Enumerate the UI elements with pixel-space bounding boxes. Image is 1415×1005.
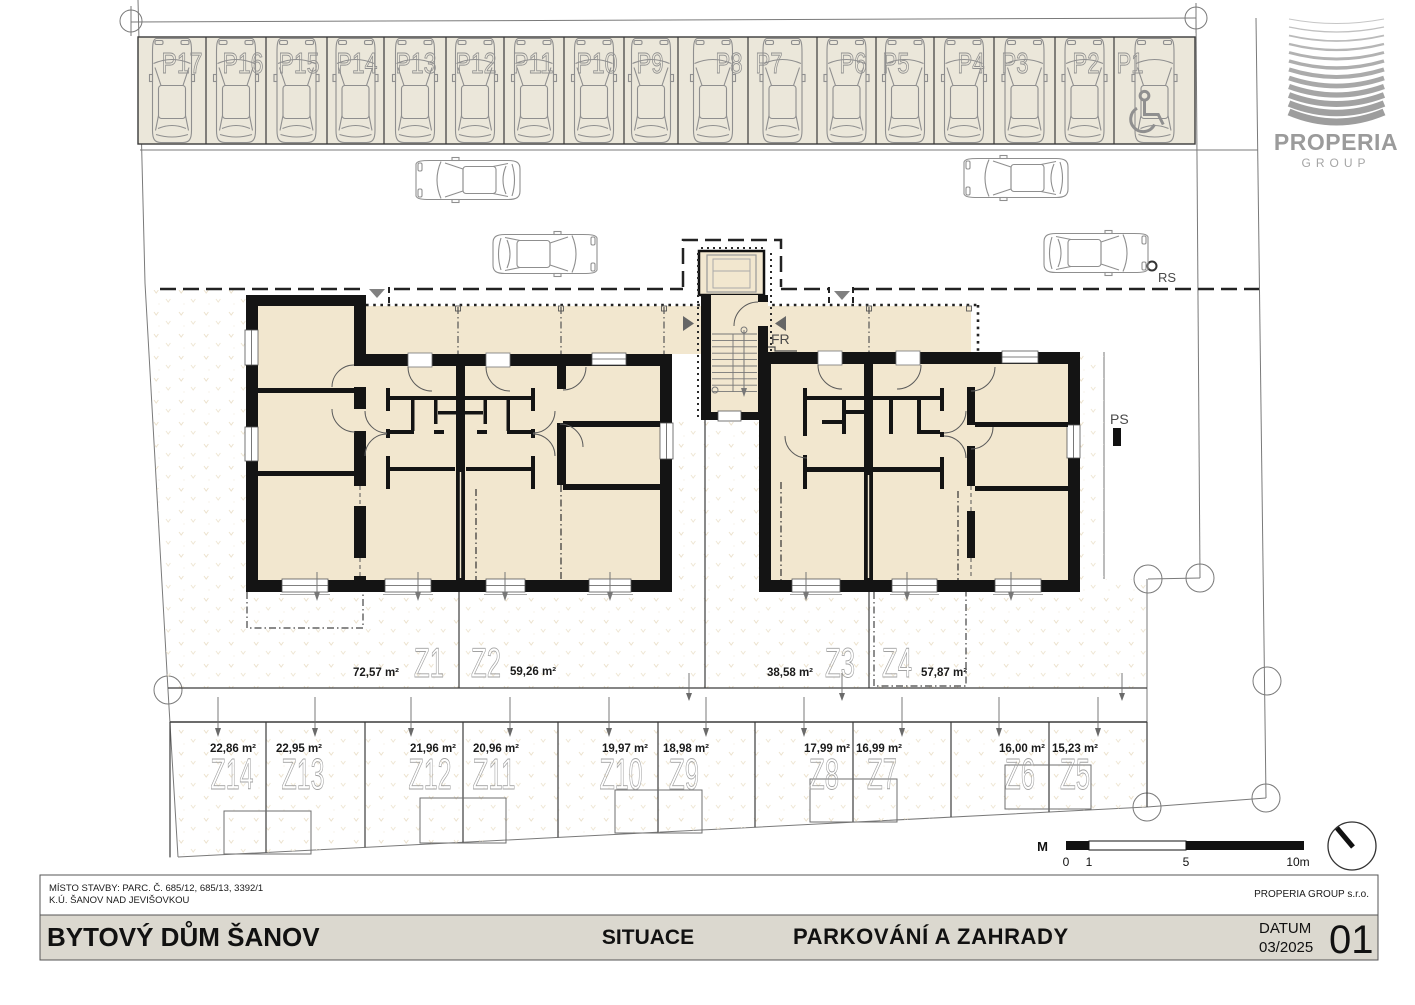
svg-text:Z2: Z2: [471, 639, 501, 686]
svg-text:M: M: [1037, 839, 1048, 854]
svg-text:21,96 m²: 21,96 m²: [410, 743, 456, 755]
svg-text:Z8: Z8: [809, 750, 839, 799]
svg-text:18,98 m²: 18,98 m²: [663, 743, 709, 755]
svg-text:P3: P3: [1002, 48, 1029, 80]
svg-text:P12: P12: [456, 48, 497, 80]
svg-text:P6: P6: [840, 48, 867, 80]
svg-text:P17: P17: [162, 48, 203, 80]
svg-text:22,86 m²: 22,86 m²: [210, 743, 256, 755]
svg-text:P13: P13: [396, 48, 437, 80]
svg-text:P15: P15: [279, 48, 320, 80]
svg-text:Z5: Z5: [1060, 750, 1090, 799]
svg-text:17,99 m²: 17,99 m²: [804, 743, 850, 755]
svg-text:BYTOVÝ DŮM ŠANOV: BYTOVÝ DŮM ŠANOV: [47, 920, 320, 952]
svg-text:57,87 m²: 57,87 m²: [921, 667, 967, 679]
svg-text:Z3: Z3: [825, 639, 855, 686]
svg-text:P11: P11: [513, 48, 554, 80]
svg-text:MÍSTO STAVBY: PARC. Č. 685/12,: MÍSTO STAVBY: PARC. Č. 685/12, 685/13, 3…: [49, 883, 263, 894]
svg-text:DATUM: DATUM: [1259, 920, 1311, 937]
svg-text:16,99 m²: 16,99 m²: [856, 743, 902, 755]
svg-text:1: 1: [1086, 855, 1093, 869]
svg-text:Z12: Z12: [409, 750, 452, 799]
svg-text:P4: P4: [958, 48, 985, 80]
svg-text:P10: P10: [577, 48, 618, 80]
svg-text:59,26 m²: 59,26 m²: [510, 666, 556, 678]
svg-text:P9: P9: [637, 48, 664, 80]
svg-text:Z10: Z10: [600, 750, 643, 799]
svg-text:20,96 m²: 20,96 m²: [473, 743, 519, 755]
svg-text:K.Ú. ŠANOV NAD JEVIŠOVKOU: K.Ú. ŠANOV NAD JEVIŠOVKOU: [49, 895, 190, 906]
svg-text:P14: P14: [337, 48, 378, 80]
svg-text:01: 01: [1329, 918, 1374, 962]
svg-text:16,00 m²: 16,00 m²: [999, 743, 1045, 755]
svg-text:P1: P1: [1117, 48, 1144, 80]
svg-text:0: 0: [1063, 855, 1070, 869]
svg-text:22,95 m²: 22,95 m²: [276, 743, 322, 755]
svg-text:P16: P16: [223, 48, 264, 80]
svg-text:PS: PS: [1110, 411, 1129, 427]
svg-text:19,97 m²: 19,97 m²: [602, 743, 648, 755]
svg-text:15,23 m²: 15,23 m²: [1052, 743, 1098, 755]
svg-text:Z9: Z9: [669, 750, 699, 799]
svg-text:Z1: Z1: [414, 639, 444, 686]
svg-text:SITUACE: SITUACE: [602, 926, 694, 949]
svg-text:10m: 10m: [1286, 855, 1309, 869]
svg-text:38,58 m²: 38,58 m²: [767, 667, 813, 679]
svg-text:Z7: Z7: [867, 750, 897, 799]
svg-text:GROUP: GROUP: [1301, 156, 1370, 170]
svg-text:Z4: Z4: [882, 639, 912, 686]
svg-text:5: 5: [1183, 855, 1190, 869]
svg-text:Z11: Z11: [473, 750, 516, 799]
svg-text:P8: P8: [716, 48, 743, 80]
svg-text:FR: FR: [771, 331, 790, 347]
svg-text:PROPERIA GROUP s.r.o.: PROPERIA GROUP s.r.o.: [1254, 889, 1369, 900]
svg-text:72,57 m²: 72,57 m²: [353, 667, 399, 679]
svg-text:P7: P7: [756, 48, 783, 80]
svg-text:P2: P2: [1073, 48, 1100, 80]
svg-text:P5: P5: [883, 48, 910, 80]
svg-text:03/2025: 03/2025: [1259, 939, 1313, 956]
svg-text:PARKOVÁNÍ A ZAHRADY: PARKOVÁNÍ A ZAHRADY: [793, 924, 1069, 949]
svg-text:RS: RS: [1158, 270, 1176, 285]
svg-text:Z13: Z13: [282, 750, 325, 799]
svg-text:Z14: Z14: [211, 750, 254, 799]
svg-text:PROPERIA: PROPERIA: [1274, 129, 1398, 155]
svg-text:Z6: Z6: [1005, 750, 1035, 799]
